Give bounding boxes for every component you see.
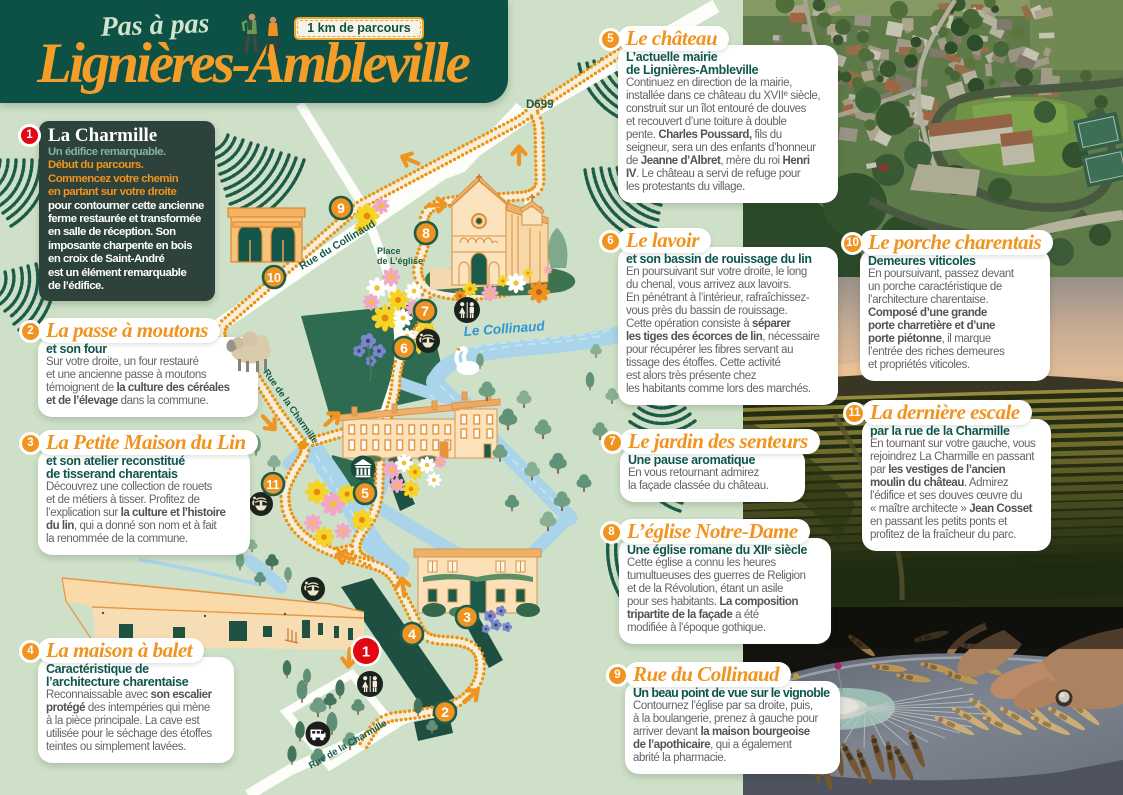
svg-text:11: 11 [266,478,279,492]
svg-text:5: 5 [361,485,369,501]
svg-text:1: 1 [362,644,370,661]
svg-text:4: 4 [408,626,416,642]
svg-text:2: 2 [441,704,449,720]
svg-text:7: 7 [421,303,429,319]
svg-text:9: 9 [337,200,345,216]
svg-text:D699: D699 [526,99,554,111]
svg-text:8: 8 [422,225,430,241]
svg-text:6: 6 [400,340,408,356]
svg-text:Place: Place [377,246,401,256]
svg-text:de L’église: de L’église [377,256,423,266]
svg-text:3: 3 [463,609,471,625]
svg-text:10: 10 [267,271,281,285]
